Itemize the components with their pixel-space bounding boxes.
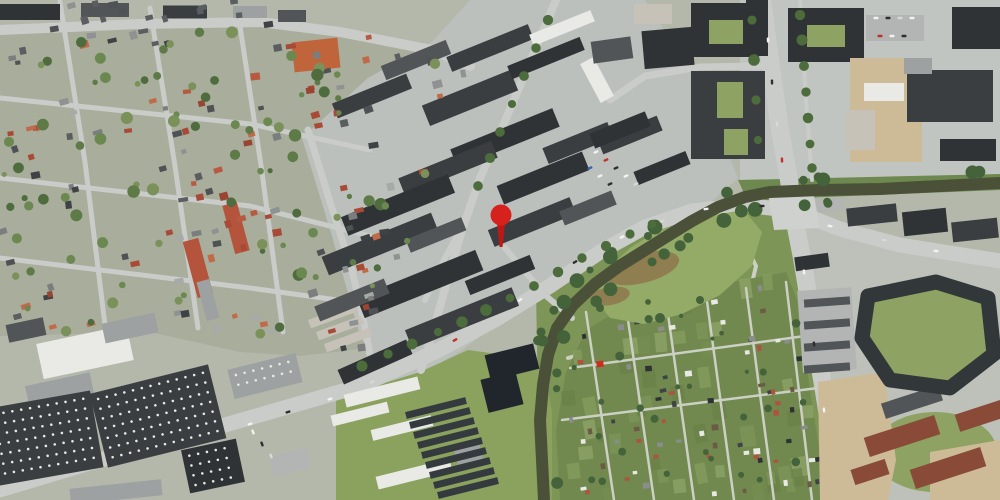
roadside-tree <box>485 153 495 163</box>
tree <box>121 112 133 124</box>
vehicle <box>898 17 903 19</box>
roadside-tree <box>803 113 814 124</box>
tree <box>168 115 180 127</box>
vehicle <box>910 17 915 19</box>
building <box>0 4 60 20</box>
tree <box>76 37 87 48</box>
riverbank-tree <box>551 477 563 489</box>
tree <box>38 194 49 205</box>
tree <box>226 197 236 207</box>
riverbank-tree <box>557 295 572 310</box>
riverbank-tree <box>735 205 748 218</box>
riverbank-tree <box>570 273 585 288</box>
tree <box>181 292 187 298</box>
building <box>746 0 768 56</box>
riverbank-tree <box>966 165 980 179</box>
tree <box>61 326 71 336</box>
tree <box>153 72 161 80</box>
tree <box>255 329 265 339</box>
riverbank-tree <box>716 213 731 228</box>
tree <box>6 203 14 211</box>
tree <box>231 120 240 129</box>
tree <box>364 195 375 206</box>
tree <box>159 45 167 53</box>
building <box>940 139 996 161</box>
tree <box>245 126 253 134</box>
tree <box>2 172 7 177</box>
riverbank-tree <box>648 257 657 266</box>
building <box>904 58 932 74</box>
roadside-tree <box>748 54 760 66</box>
tree <box>92 80 97 85</box>
major-junction <box>768 194 820 230</box>
tree <box>175 297 183 305</box>
tree <box>88 319 95 326</box>
riverbank-tree <box>591 296 603 308</box>
tree <box>147 183 159 195</box>
courtyard-garden <box>717 82 743 118</box>
riverbank-tree <box>748 202 763 217</box>
riverbank-tree <box>603 282 617 296</box>
roadside-tree <box>553 267 564 278</box>
tree <box>107 297 118 308</box>
tree <box>12 272 19 279</box>
tree <box>374 264 381 271</box>
tree <box>289 129 302 142</box>
house <box>19 47 27 55</box>
roadside-tree <box>801 87 810 96</box>
tree <box>268 168 273 173</box>
vehicle <box>890 35 895 37</box>
roadside-tree <box>543 15 553 25</box>
tree <box>421 169 430 178</box>
apartment-complex <box>862 282 994 388</box>
tree <box>334 214 341 221</box>
tree <box>22 195 28 201</box>
building <box>278 10 306 22</box>
riverbank-tree <box>658 248 669 259</box>
house <box>7 131 14 136</box>
tree <box>319 86 330 97</box>
roadside-tree <box>625 229 634 238</box>
roadside-tree <box>456 316 467 327</box>
tree <box>135 81 141 87</box>
building <box>845 110 875 150</box>
vehicle <box>767 37 770 42</box>
riverbank-tree <box>799 176 808 185</box>
roadside-tree <box>747 15 756 24</box>
pin-head <box>491 205 512 226</box>
riverbank-tree <box>683 233 693 243</box>
house <box>250 72 260 80</box>
building <box>634 4 672 24</box>
tree <box>141 76 149 84</box>
tree <box>382 202 389 209</box>
building <box>907 70 993 122</box>
roadside-tree <box>806 140 815 149</box>
tree <box>97 237 108 248</box>
tree <box>350 259 357 266</box>
house <box>86 32 96 39</box>
house <box>196 7 203 14</box>
vehicle <box>776 121 779 126</box>
house <box>357 344 366 352</box>
roadside-tree <box>495 127 505 137</box>
riverbank-tree <box>552 368 561 377</box>
roadside-tree <box>434 328 442 336</box>
tree <box>230 150 240 160</box>
tree <box>286 51 296 61</box>
roadside-tree <box>795 10 805 20</box>
tree <box>257 168 264 175</box>
tree <box>275 322 284 331</box>
roadside-tree <box>754 136 762 144</box>
vehicle <box>874 17 879 19</box>
riverbank-tree <box>675 240 686 251</box>
tree <box>201 92 211 102</box>
roadside-tree <box>356 360 367 371</box>
house <box>236 12 243 18</box>
tree <box>61 193 70 202</box>
roadside-tree <box>383 349 392 358</box>
roadside-tree <box>648 220 657 229</box>
roadside-tree <box>508 100 516 108</box>
tree <box>299 92 304 97</box>
tree <box>37 119 49 131</box>
tree <box>311 69 323 81</box>
roadside-tree <box>797 35 808 46</box>
riverbank-tree <box>537 327 546 336</box>
house <box>386 182 395 191</box>
tree <box>191 122 200 131</box>
tree <box>195 28 204 37</box>
building <box>641 27 694 69</box>
roadside-tree <box>751 95 760 104</box>
courtyard-garden <box>807 25 845 47</box>
vehicle <box>902 35 907 37</box>
tree <box>347 194 352 199</box>
tree <box>12 233 22 243</box>
tree <box>188 82 196 90</box>
house <box>306 87 315 94</box>
house <box>180 310 189 318</box>
house <box>47 291 53 298</box>
roadside-tree <box>799 61 809 71</box>
tree <box>166 40 174 48</box>
roadside-tree <box>407 339 418 350</box>
red-roof-shed <box>596 360 604 367</box>
tree <box>127 185 140 198</box>
riverbank-tree <box>549 306 558 315</box>
riverbank-tree <box>799 199 811 211</box>
tree <box>38 62 45 69</box>
vehicle <box>759 205 764 208</box>
tree <box>26 267 34 275</box>
tree <box>155 240 162 247</box>
riverbank-tree <box>553 385 560 392</box>
tree <box>4 137 14 147</box>
tree <box>274 122 284 132</box>
tree <box>263 117 272 126</box>
roadside-tree <box>601 241 611 251</box>
house <box>273 44 282 52</box>
tree <box>370 283 375 288</box>
tree <box>24 201 33 210</box>
house <box>163 106 169 111</box>
tree <box>313 274 319 280</box>
tree <box>430 59 440 69</box>
tree <box>100 72 111 83</box>
tree <box>226 26 238 38</box>
house <box>66 133 73 140</box>
riverbank-tree <box>603 250 618 265</box>
roadside-tree <box>519 71 529 81</box>
vehicle <box>771 79 774 84</box>
roadside-tree <box>577 253 586 262</box>
tree <box>335 95 341 101</box>
tree <box>119 282 126 289</box>
map-canvas <box>0 0 1000 500</box>
tree <box>292 209 301 218</box>
vehicle <box>878 35 883 37</box>
roadside-tree <box>506 294 515 303</box>
building <box>952 7 1000 49</box>
tree <box>336 110 341 115</box>
tree <box>70 209 82 221</box>
satellite-map[interactable] <box>0 0 1000 500</box>
house <box>207 105 215 113</box>
riverbank-tree <box>557 330 570 343</box>
tree <box>66 255 75 264</box>
courtyard-garden <box>724 129 748 155</box>
roadside-tree <box>529 281 539 291</box>
tree <box>296 267 307 278</box>
tree <box>95 53 106 64</box>
riverbank-tree <box>533 336 542 345</box>
tree <box>404 238 410 244</box>
roadside-tree <box>807 163 816 172</box>
house <box>15 60 21 65</box>
tree <box>287 151 298 162</box>
courtyard-garden <box>709 20 743 44</box>
building <box>902 208 948 236</box>
tree <box>95 133 107 145</box>
tree <box>280 242 286 248</box>
tree <box>257 239 267 249</box>
tree <box>13 162 24 173</box>
house <box>191 181 197 186</box>
roadside-tree <box>473 181 483 191</box>
tree <box>25 305 31 311</box>
roadside-tree <box>531 43 541 53</box>
riverbank-tree <box>816 173 830 187</box>
tree <box>76 141 85 150</box>
tree <box>308 228 318 238</box>
riverbank-tree <box>823 198 831 206</box>
roadside-tree <box>480 304 492 316</box>
vehicle <box>886 17 891 19</box>
house <box>65 201 72 210</box>
tree <box>210 76 219 85</box>
building <box>864 83 904 101</box>
house <box>393 254 400 260</box>
tree <box>334 71 341 78</box>
vehicle <box>781 157 784 162</box>
house <box>212 325 220 333</box>
riverbank-tree <box>721 187 733 199</box>
